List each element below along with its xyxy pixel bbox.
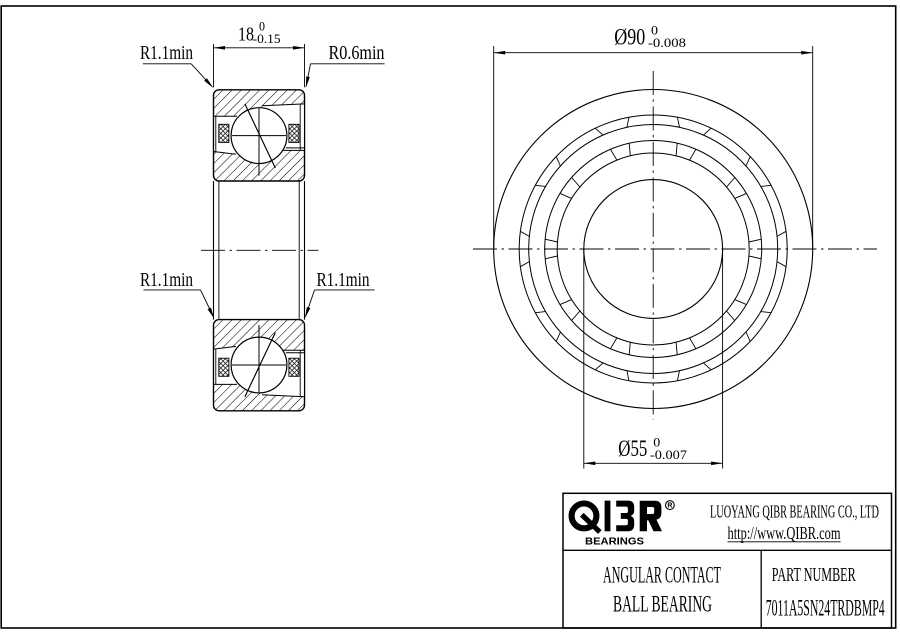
svg-text:-0.15: -0.15 <box>253 31 281 46</box>
svg-text:Ø55: Ø55 <box>618 436 647 461</box>
svg-text:-0.008: -0.008 <box>648 35 686 50</box>
svg-text:-0.007: -0.007 <box>650 447 688 462</box>
svg-text:R1.1min: R1.1min <box>140 270 193 291</box>
svg-text:R1.1min: R1.1min <box>140 43 193 64</box>
svg-text:BEARINGS: BEARINGS <box>585 535 644 547</box>
svg-text:R1.1min: R1.1min <box>317 270 370 291</box>
svg-text:18: 18 <box>238 23 254 45</box>
svg-text:R: R <box>667 503 672 510</box>
svg-text:LUOYANG QIBR BEARING CO., LTD: LUOYANG QIBR BEARING CO., LTD <box>710 501 879 521</box>
svg-text:ANGULAR CONTACT: ANGULAR CONTACT <box>603 563 721 588</box>
svg-text:7011A5SN24TRDBMP4: 7011A5SN24TRDBMP4 <box>766 595 885 620</box>
svg-text:R0.6min: R0.6min <box>329 43 385 64</box>
svg-text:Ø90: Ø90 <box>614 24 645 49</box>
svg-text:http://www.QIBR.com: http://www.QIBR.com <box>728 523 841 543</box>
svg-text:BALL BEARING: BALL BEARING <box>613 592 712 617</box>
svg-text:PART NUMBER: PART NUMBER <box>772 564 856 586</box>
